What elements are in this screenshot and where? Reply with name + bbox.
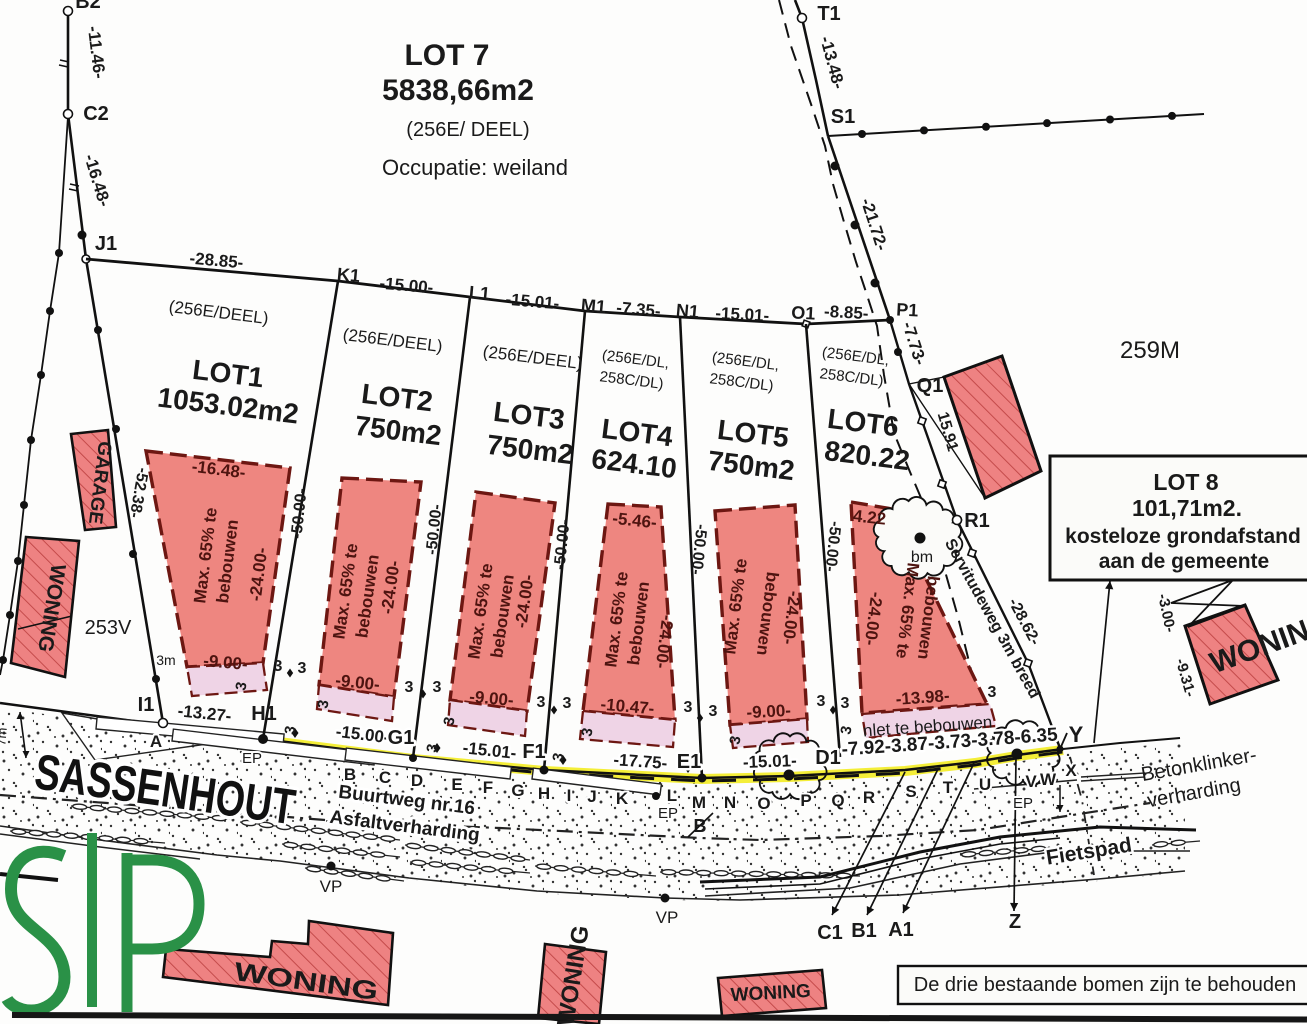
svg-text:WONING: WONING — [730, 981, 811, 1006]
svg-text:-15.01-: -15.01- — [743, 751, 798, 772]
svg-text:VP: VP — [320, 877, 343, 896]
svg-text:D1: D1 — [815, 747, 841, 769]
svg-text:O: O — [757, 794, 770, 813]
svg-text:LOT 7: LOT 7 — [404, 39, 489, 72]
svg-text:H1: H1 — [251, 703, 277, 725]
svg-text:P: P — [800, 791, 811, 810]
svg-text:O1: O1 — [791, 302, 816, 323]
svg-text:-8.85-: -8.85- — [824, 302, 869, 323]
svg-text:aan de gemeente: aan de gemeente — [1099, 550, 1269, 573]
svg-text:101,71m2.: 101,71m2. — [1132, 495, 1242, 521]
svg-text:L1: L1 — [468, 282, 491, 304]
svg-text:Q1: Q1 — [917, 375, 944, 397]
svg-text:-17.75-: -17.75- — [613, 750, 668, 773]
svg-text:7m: 7m — [0, 727, 10, 746]
svg-text:EP: EP — [658, 805, 678, 822]
svg-text:Y: Y — [1069, 722, 1084, 747]
svg-text:VP: VP — [656, 908, 679, 927]
svg-text:M: M — [692, 793, 706, 812]
svg-text:5838,66m2: 5838,66m2 — [382, 74, 534, 107]
svg-text:-7.35-: -7.35- — [616, 298, 662, 321]
svg-text:U: U — [979, 775, 991, 794]
svg-text:Q: Q — [831, 791, 844, 810]
svg-text:3: 3 — [298, 660, 307, 677]
svg-text:F: F — [483, 778, 493, 797]
svg-text:B: B — [344, 765, 356, 784]
svg-text:EP: EP — [1013, 795, 1033, 812]
svg-text:3: 3 — [433, 679, 442, 696]
svg-text:S: S — [905, 782, 916, 801]
svg-text:Z: Z — [1009, 911, 1021, 933]
svg-text:-15.01-: -15.01- — [715, 304, 770, 326]
svg-text:C2: C2 — [83, 103, 109, 125]
svg-text:J1: J1 — [95, 233, 117, 255]
svg-text:De drie bestaande bomen zijn t: De drie bestaande bomen zijn te behouden — [914, 974, 1297, 996]
svg-text:3: 3 — [988, 684, 997, 701]
svg-text:259M: 259M — [1120, 337, 1180, 364]
svg-text:3m: 3m — [156, 652, 175, 668]
svg-text:C: C — [379, 768, 391, 787]
svg-text:B2: B2 — [75, 0, 101, 13]
svg-text:D: D — [411, 771, 423, 790]
svg-text:3: 3 — [709, 703, 718, 720]
svg-text:E: E — [451, 775, 462, 794]
svg-text:A: A — [150, 732, 162, 751]
svg-text:K1: K1 — [336, 264, 361, 286]
svg-text:E1: E1 — [677, 751, 701, 773]
svg-text:J: J — [587, 787, 596, 806]
svg-text:N: N — [724, 793, 736, 812]
svg-text:W: W — [1040, 770, 1057, 789]
svg-text:Occupatie: weiland: Occupatie: weiland — [382, 155, 568, 180]
svg-text:3: 3 — [537, 694, 546, 711]
svg-text:EP: EP — [242, 750, 262, 767]
svg-text:L: L — [667, 786, 677, 805]
svg-text:T: T — [943, 778, 954, 797]
svg-text:3: 3 — [841, 695, 850, 712]
svg-text:R: R — [863, 788, 875, 807]
svg-text:R1: R1 — [964, 510, 990, 532]
svg-text:A1: A1 — [888, 919, 914, 941]
svg-text:V: V — [1025, 772, 1037, 791]
svg-text:S1: S1 — [831, 106, 855, 128]
svg-text:K: K — [616, 789, 629, 808]
svg-text:B1: B1 — [851, 920, 877, 942]
svg-text:(256E/ DEEL): (256E/ DEEL) — [406, 119, 529, 141]
svg-text:H: H — [538, 784, 550, 803]
svg-text:I1: I1 — [138, 694, 155, 716]
svg-text:4.22: 4.22 — [852, 506, 887, 528]
svg-text:3: 3 — [817, 693, 826, 710]
svg-text:3: 3 — [684, 699, 693, 716]
svg-text:253V: 253V — [85, 617, 132, 639]
svg-text:G1: G1 — [388, 727, 415, 749]
svg-text:T1: T1 — [817, 3, 840, 25]
svg-text:F1: F1 — [522, 741, 545, 763]
svg-text:-13.98-: -13.98- — [895, 686, 950, 709]
svg-text:I: I — [567, 786, 572, 805]
svg-text:LOT 8: LOT 8 — [1153, 469, 1218, 495]
svg-text:3: 3 — [405, 679, 414, 696]
svg-text:P1: P1 — [896, 299, 919, 320]
svg-text:3: 3 — [563, 695, 572, 712]
svg-text:-9.00-: -9.00- — [469, 687, 515, 710]
svg-text:-9.00-: -9.00- — [746, 701, 791, 722]
svg-text:N1: N1 — [675, 300, 700, 322]
svg-text:kosteloze grondafstand: kosteloze grondafstand — [1065, 525, 1301, 548]
svg-text:G: G — [511, 781, 524, 800]
svg-text:-9.00-: -9.00- — [203, 651, 249, 674]
svg-text:M1: M1 — [580, 295, 607, 317]
svg-text:3: 3 — [274, 658, 283, 675]
svg-text:X: X — [1065, 761, 1077, 780]
svg-text:C1: C1 — [817, 922, 843, 944]
